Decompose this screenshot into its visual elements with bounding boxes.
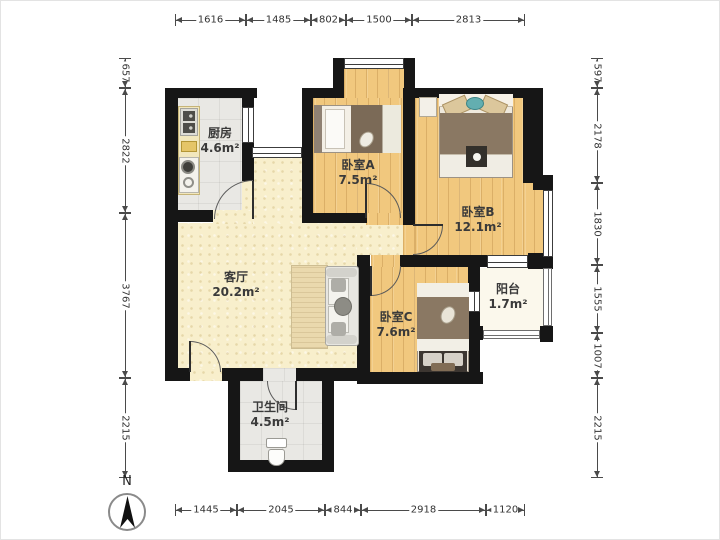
kitchen-area: 4.6m² <box>190 141 250 156</box>
dim-right-5-label: 1007 <box>592 341 603 370</box>
compass-north-label: N <box>117 474 137 488</box>
bedroom-b-window <box>543 190 553 257</box>
living-room-label: 客厅 20.2m² <box>205 270 267 300</box>
wall-bathroom-left <box>228 368 240 472</box>
dim-right-6-label: 2215 <box>592 413 603 442</box>
dim-top-5: 2813 <box>412 14 525 26</box>
dim-bottom-4: 2918 <box>361 504 486 516</box>
dim-left-4: 2215 <box>119 378 131 478</box>
dim-left-2: 2822 <box>119 88 131 213</box>
toilet-bowl <box>268 449 285 466</box>
sofa-armrest-top <box>326 268 357 277</box>
wall-bottom-left <box>165 368 190 381</box>
dim-right-6: 2215 <box>591 378 603 478</box>
wall-bedroom-a-left <box>302 88 313 223</box>
kitchen-door-leaf <box>252 181 254 219</box>
bedroom-a-headboard <box>314 105 322 153</box>
bedroom-b-cushion <box>466 97 484 110</box>
wall-balcony-post-bottomright <box>540 326 553 342</box>
dim-top-2: 1485 <box>246 14 311 26</box>
balcony-sliding-door <box>487 255 528 268</box>
dim-top-2-label: 1485 <box>264 15 293 26</box>
living-room-name: 客厅 <box>205 270 267 285</box>
kitchen-name: 厨房 <box>190 126 250 141</box>
living-room-area: 20.2m² <box>205 285 267 300</box>
living-room-north-window <box>252 147 302 158</box>
dim-right-4: 1555 <box>591 265 603 333</box>
dim-bottom-1: 1445 <box>175 504 237 516</box>
bathroom-area: 4.5m² <box>240 415 300 430</box>
dim-bottom-3: 844 <box>325 504 361 516</box>
dim-top-4-label: 1500 <box>364 15 393 26</box>
bedroom-c-sheet-band <box>417 339 469 351</box>
dim-left-1: 657 <box>119 58 131 88</box>
bedroom-b-floor-ext <box>523 183 545 257</box>
dim-bottom-5-label: 1120 <box>491 505 520 516</box>
dim-right-1-label: 597 <box>592 61 603 84</box>
dim-right-2-label: 2178 <box>592 121 603 150</box>
sofa-armrest-bottom <box>326 335 357 344</box>
dim-top-1: 1616 <box>175 14 246 26</box>
wall-left <box>165 88 178 380</box>
entry-door-leaf <box>189 341 191 372</box>
wall-bathroom-right <box>322 368 334 472</box>
dim-left-2-label: 2822 <box>120 136 131 165</box>
wall-bedroom-a-bottom <box>302 213 367 223</box>
bedroom-b-door-leaf <box>413 224 443 226</box>
dim-left-3-label: 3767 <box>120 281 131 310</box>
kitchen-sink-basin-1 <box>183 111 195 121</box>
dim-left-3: 3767 <box>119 213 131 378</box>
stove-burner-2 <box>183 177 194 188</box>
dim-right-2: 2178 <box>591 88 603 183</box>
kitchen-label: 厨房 4.6m² <box>190 126 250 156</box>
bedroom-a-door-leaf <box>365 183 367 218</box>
wall-bedroom-c-bottom <box>370 372 483 384</box>
stove-burner-1 <box>181 160 195 174</box>
dim-bottom-4-label: 2918 <box>409 505 438 516</box>
wall-bottom-right-stub <box>334 368 357 381</box>
bedroom-a-area: 7.5m² <box>328 173 388 188</box>
bedroom-a-bay-floor <box>344 67 404 98</box>
dim-left-4-label: 2215 <box>120 413 131 442</box>
sofa-pillow-bottom <box>331 322 346 336</box>
dim-top-5-label: 2813 <box>454 15 483 26</box>
bedroom-a-name: 卧室A <box>328 158 388 173</box>
dim-bottom-2: 2045 <box>237 504 325 516</box>
dim-bottom-1-label: 1445 <box>191 505 220 516</box>
wall-bathroom-top-left <box>240 368 263 381</box>
wall-kitchen-right-upper <box>242 88 254 107</box>
bedroom-c-name: 卧室C <box>366 310 426 325</box>
dim-top-1-label: 1616 <box>196 15 225 26</box>
sofa-pillow-top <box>331 278 346 292</box>
bedroom-a-bed-foot <box>382 105 401 153</box>
bedroom-a-bay-window <box>344 58 404 69</box>
bedroom-a-label: 卧室A 7.5m² <box>328 158 388 188</box>
bedroom-b-label: 卧室B 12.1m² <box>446 205 510 235</box>
balcony-label: 阳台 1.7m² <box>478 282 538 312</box>
sofa-pouf <box>334 297 352 316</box>
bathroom-door-threshold <box>263 368 296 381</box>
bedroom-b-area: 12.1m² <box>446 220 510 235</box>
balcony-right-glazing <box>543 268 552 326</box>
bedroom-b-name: 卧室B <box>446 205 510 220</box>
dim-left-1-label: 657 <box>120 61 131 84</box>
bedroom-c-bed-foot <box>417 283 469 297</box>
bedroom-c-throw <box>431 363 455 371</box>
dim-bottom-3-label: 844 <box>331 505 354 516</box>
dim-right-5: 1007 <box>591 333 603 378</box>
bedroom-b-tray-lamp <box>473 153 481 161</box>
floor-plan-canvas: 厨房 4.6m² 卧室A 7.5m² 卧室B 12.1m² 客厅 20.2m² … <box>0 0 720 540</box>
bedroom-c-door-leaf <box>370 266 372 296</box>
balcony-area: 1.7m² <box>478 297 538 312</box>
dim-right-3-label: 1830 <box>592 209 603 238</box>
balcony-bottom-glazing <box>483 330 540 339</box>
dim-right-3: 1830 <box>591 183 603 265</box>
balcony-name: 阳台 <box>478 282 538 297</box>
living-room-rug <box>291 265 328 349</box>
dim-top-3-label: 802 <box>317 15 340 26</box>
dim-right-4-label: 1555 <box>592 284 603 313</box>
toilet-tank <box>266 438 287 448</box>
wall-bedroom-b-right-step <box>533 175 553 190</box>
wall-bedroom-b-right-upper <box>523 98 543 183</box>
bathroom-label: 卫生间 4.5m² <box>240 400 300 430</box>
dim-bottom-2-label: 2045 <box>266 505 295 516</box>
dim-bottom-5: 1120 <box>486 504 525 516</box>
bathroom-name: 卫生间 <box>240 400 300 415</box>
bedroom-c-label: 卧室C 7.6m² <box>366 310 426 340</box>
wall-kitchen-bottom <box>165 210 213 222</box>
wall-balcony-post-bottomleft <box>468 326 483 340</box>
bedroom-c-area: 7.6m² <box>366 325 426 340</box>
dim-right-1: 597 <box>591 58 603 88</box>
dim-top-3: 802 <box>311 14 346 26</box>
bedroom-a-pillow <box>325 109 345 149</box>
dim-top-4: 1500 <box>346 14 412 26</box>
wall-bay-left-post <box>333 58 344 98</box>
wall-bedroom-a-b-divider <box>403 88 415 225</box>
hallway-floor <box>357 223 403 255</box>
bedroom-b-nightstand <box>419 97 437 117</box>
